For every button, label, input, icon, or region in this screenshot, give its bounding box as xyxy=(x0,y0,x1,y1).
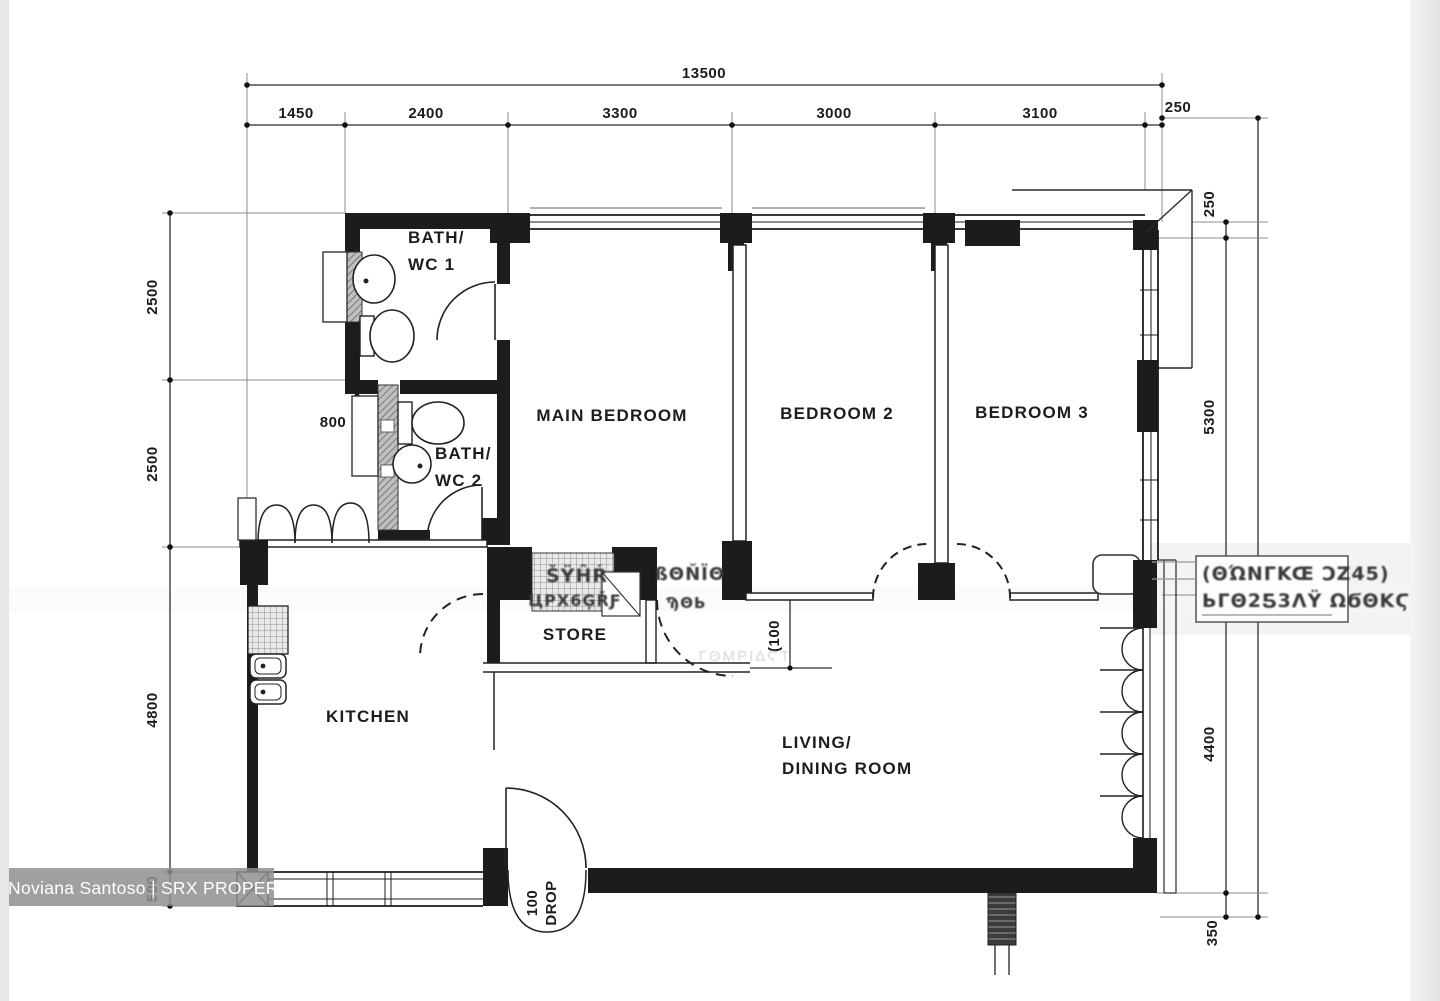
dim-left: 4800 xyxy=(144,692,161,727)
watermark-text: Noviana Santoso | SRX PROPERTY xyxy=(8,878,301,898)
room-living-label: LIVING/ xyxy=(782,733,852,752)
ghost-text: ΓΘΜΡΙΔϚΤ xyxy=(699,648,792,665)
entrance-drop-label: DROP xyxy=(543,880,560,925)
dimension-labels: 13500 1450 2400 3300 3000 3100 250 2500 … xyxy=(144,65,1221,946)
bath1-sink xyxy=(353,255,395,303)
dim-left: 2500 xyxy=(144,279,161,314)
garbled-riser-text: ϠΘЬ xyxy=(666,594,707,612)
room-kitchen-label: KITCHEN xyxy=(326,707,410,726)
watermark: Noviana Santoso | SRX PROPERTY xyxy=(0,868,301,906)
room-living-label: DINING ROOM xyxy=(782,759,912,778)
garbled-store-text: ŠΫĤŔ xyxy=(546,563,608,587)
dim-top-total: 13500 xyxy=(682,65,726,82)
kitchen-counter xyxy=(248,606,288,654)
bath2-sink xyxy=(393,445,431,483)
room-main-bedroom-label: MAIN BEDROOM xyxy=(536,406,687,425)
room-bath1-label: BATH/ xyxy=(408,228,465,247)
dim-right: 250 xyxy=(1201,191,1218,218)
room-bedroom2-label: BEDROOM 2 xyxy=(780,404,894,423)
room-bedroom3-label: BEDROOM 3 xyxy=(975,403,1089,422)
room-store-label: STORE xyxy=(543,625,607,644)
dim-top-segment: 3300 xyxy=(602,105,637,122)
dim-top-segment: 3000 xyxy=(816,105,851,122)
dim-left: 2500 xyxy=(144,446,161,481)
scan-edge-right xyxy=(1410,0,1440,1001)
bath2-wc-tank xyxy=(398,402,412,444)
dim-top-segment: 2400 xyxy=(408,105,443,122)
room-bath2-label: BATH/ xyxy=(435,444,492,463)
garbled-riser-text: ßΘŇΪΘ xyxy=(655,563,725,585)
ac-ledge xyxy=(1012,190,1192,368)
dimension-lines xyxy=(162,73,1268,920)
cabinet xyxy=(1093,555,1140,594)
dim-right: 4400 xyxy=(1201,726,1218,761)
entrance-drop-value: 100 xyxy=(524,890,541,917)
room-bath1-label: WC 1 xyxy=(408,255,455,274)
dim-top-segment: 250 xyxy=(1165,99,1192,116)
scan-edge-left xyxy=(0,0,9,1001)
svg-text:ЬΓΘ2Ƽ3ΛΫ ΩϬΘΚϚ: ЬΓΘ2Ƽ3ΛΫ ΩϬΘΚϚ xyxy=(1202,588,1410,612)
dim-right: 5300 xyxy=(1201,399,1218,434)
dim-top-segment: 3100 xyxy=(1022,105,1057,122)
bath2-wc xyxy=(412,402,464,444)
floorplan-page: 13500 1450 2400 3300 3000 3100 250 2500 … xyxy=(0,0,1440,1001)
garbled-store-text: ЦΡΧ6ĢŘƑ xyxy=(528,591,621,610)
dim-right: 350 xyxy=(1204,920,1221,947)
svg-text:(ΘΏNΓKŒ ϽZ45): (ΘΏNΓKŒ ϽZ45) xyxy=(1202,563,1390,585)
floor-plan-drawing: 13500 1450 2400 3300 3000 3100 250 2500 … xyxy=(0,0,1440,1001)
room-bath2-label: WC 2 xyxy=(435,471,482,490)
bath1-wc xyxy=(370,310,414,362)
dim-800: 800 xyxy=(320,414,347,431)
dim-top-segment: 1450 xyxy=(278,105,313,122)
